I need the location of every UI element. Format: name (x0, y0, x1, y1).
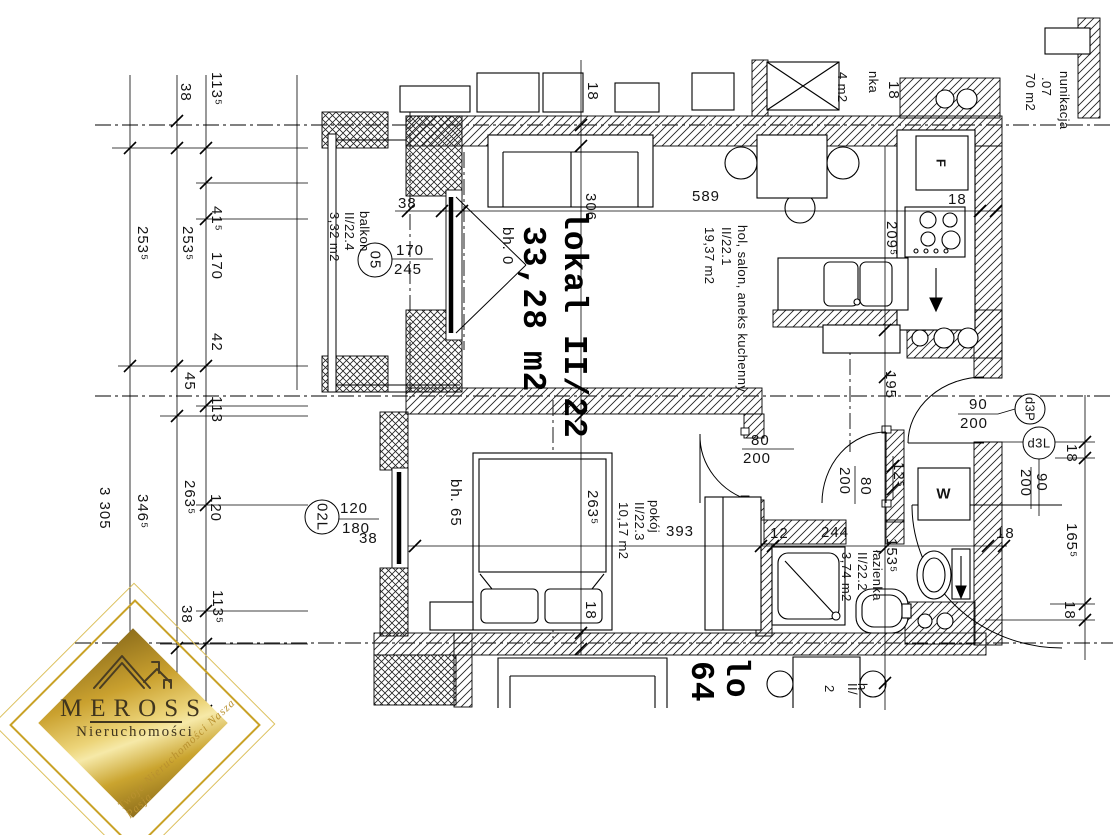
agency-logo: MEROSS Nieruchomości Twoje Nieruchomości… (28, 618, 238, 828)
dim-bh65: bh. 65 (448, 479, 463, 527)
washer-label: W (936, 487, 951, 502)
room-komunikacja-area: 70 m2 (1024, 73, 1037, 111)
dim-balc-win-h: 245 (394, 262, 422, 277)
dim-top-589: 589 (692, 189, 720, 204)
dim-pokoj-18: 18 (583, 601, 598, 620)
room-lazienka-area: 3,74 m2 (840, 552, 853, 602)
lower-neighbor-label-frag2: II/ (846, 683, 859, 695)
dim-bh0: bh. 0 (500, 227, 515, 265)
unit-area: 33,28 m2 (516, 226, 549, 392)
room-komunikacja-name: nunikacja (1058, 71, 1071, 130)
dim-left-2535-b: 253⁵ (180, 226, 195, 261)
bedroom-window (392, 468, 408, 568)
lower-neighbor-unit-frag1: lo (719, 657, 752, 699)
dim-bath-18: 18 (996, 526, 1015, 541)
upper-neighbor-name-frag: nka (867, 71, 880, 93)
room-balkon-name: balkon (358, 211, 371, 252)
room-balkon-area: 3,32 m2 (328, 212, 341, 262)
dim-left-3465: 346⁵ (135, 494, 150, 529)
dim-bath-12: 12 (770, 526, 789, 541)
dim-195: 195 (883, 371, 898, 399)
dim-top-2095: 209⁵ (884, 221, 899, 256)
room-hol-name: hol, salon, aneks kuchenny (736, 225, 749, 392)
dim-125: 12⁵ (891, 462, 906, 488)
dim-bed-win-38: 38 (359, 531, 378, 546)
toilet (917, 549, 970, 599)
logo-rule (90, 721, 182, 723)
dining-set (725, 135, 859, 223)
room-komunikacja-id: .07 (1040, 77, 1053, 96)
house-icon (86, 642, 186, 692)
room-hol-id: II/22.1 (720, 227, 733, 266)
dim-left-415: 41⁵ (209, 206, 224, 232)
dim-upper-18: 18 (886, 81, 901, 100)
room-lazienka-name: łazienka (871, 550, 884, 601)
shower (772, 547, 845, 625)
couch (488, 135, 653, 207)
dim-hall-door-w: 80 (858, 477, 873, 496)
dim-top-18-left: 18 (585, 82, 600, 101)
upper-neighbor-area-frag: 4 m2 (836, 72, 849, 103)
upper-shower (767, 62, 839, 110)
dim-left-42: 42 (209, 333, 224, 352)
dim-right-18-a: 18 (1064, 444, 1079, 463)
dim-left-2535-a: 253⁵ (135, 226, 150, 261)
marker-door-d3p: d3P (1024, 397, 1037, 421)
dim-left-38-top: 38 (178, 83, 193, 102)
dim-pokoj-door-w: 80 (751, 433, 770, 448)
dim-left-113: 113 (209, 396, 224, 423)
dim-pokoj-2635: 263⁵ (585, 490, 600, 525)
marker-door-d3l: d3L (1028, 437, 1051, 450)
room-pokoj-name: pokój (648, 500, 661, 533)
dim-balc-win-w: 170 (396, 243, 424, 258)
logo-brand: MEROSS (60, 695, 208, 723)
room-hol-area: 19,37 m2 (703, 227, 716, 284)
sink-bowl (824, 262, 858, 306)
sink-bowl (860, 262, 892, 306)
dim-left-partial: 3 305 (97, 487, 112, 530)
room-lazienka-id: II/22.2 (856, 552, 869, 591)
dim-bed-win-w: 120 (340, 501, 368, 516)
dim-left-2635: 263⁵ (182, 480, 197, 515)
fridge-label: F (935, 159, 948, 167)
dim-top-38: 38 (398, 196, 417, 211)
dim-bath-244: 244 (821, 525, 849, 540)
lower-sofa (498, 658, 667, 708)
lower-neighbor-label-frag3: 2 (823, 685, 836, 693)
room-pokoj-id: II/22.3 (633, 502, 646, 541)
wardrobe (705, 497, 761, 630)
dim-pokoj-door-h: 200 (743, 451, 771, 466)
dim-left-120: 120 (208, 494, 223, 522)
dim-hall-door-h: 200 (837, 467, 852, 495)
room-pokoj-area: 10,17 m2 (617, 502, 630, 559)
dim-left-1135-top: 113⁵ (209, 72, 224, 106)
lower-neighbor-unit-frag2: 64 (684, 661, 717, 703)
dim-right-door-h: 200 (1018, 469, 1033, 497)
dim-pokoj-393: 393 (666, 524, 694, 539)
nightstand (430, 602, 473, 630)
dim-left-170: 170 (209, 252, 224, 280)
dim-right-18-b: 18 (1062, 601, 1077, 620)
unit-name: lokal II/22 (557, 210, 590, 439)
marker-balcony-window: 05 (368, 251, 383, 270)
marker-bedroom-window: 02L (315, 503, 330, 531)
dim-right-1655: 165⁵ (1064, 523, 1079, 558)
dim-right-door-w: 90 (1034, 473, 1049, 492)
dim-ent-door-h: 200 (960, 416, 988, 431)
dim-ent-door-w: 90 (969, 397, 988, 412)
room-balkon-id: II/22.4 (343, 212, 356, 251)
dim-left-45: 45 (182, 372, 197, 391)
dim-bath-1535: 153⁵ (884, 538, 899, 573)
floorplan-page: 38 113⁵ 253⁵ 253⁵ 41⁵ 170 42 45 113 120 … (0, 0, 1113, 835)
dim-top-18-right: 18 (948, 192, 967, 207)
